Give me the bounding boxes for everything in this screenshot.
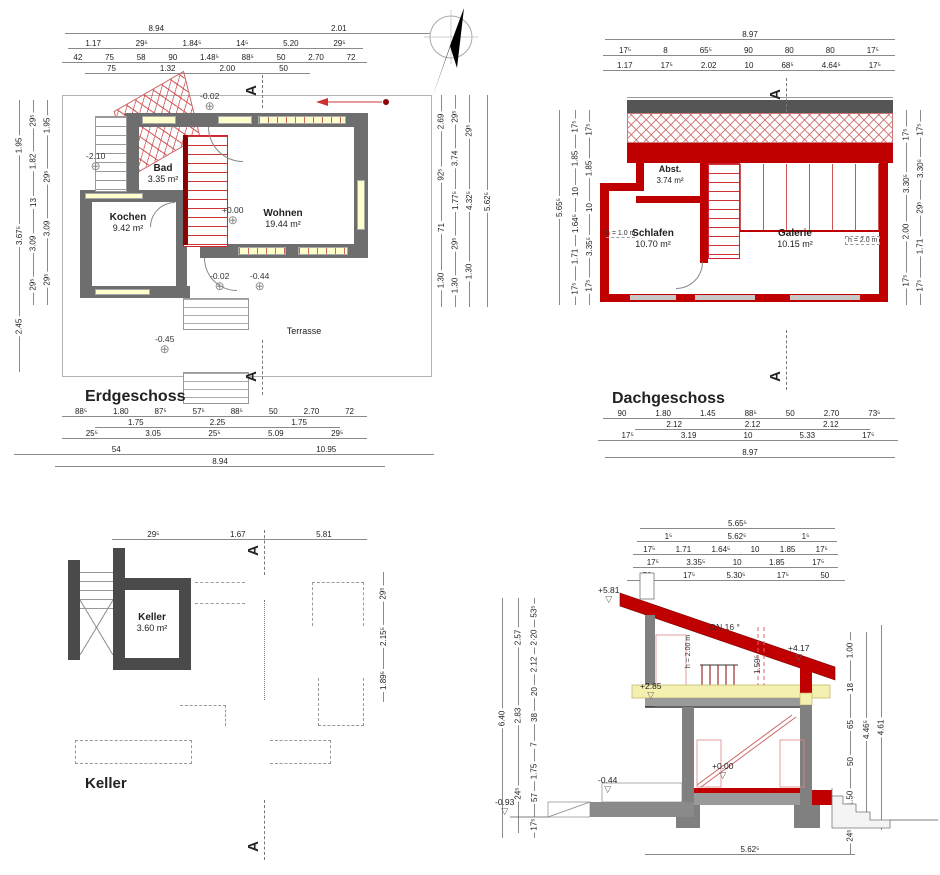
window <box>95 289 150 295</box>
height-note-right: h = 2.0 m <box>845 236 880 245</box>
room-label-abst: Abst. 3.74 m² <box>640 164 700 186</box>
dim-value: 50 <box>275 53 288 62</box>
dim-value: 1.17 <box>615 61 635 70</box>
elevation-icon: ⊕ <box>205 101 215 112</box>
level-icon: ▽ <box>501 807 508 815</box>
level-marker: +2.85▽ <box>640 682 662 699</box>
stair-shaft <box>708 163 740 259</box>
dim-value: 17⁵ <box>867 61 883 70</box>
dim-value: 2.69 <box>437 112 446 132</box>
section-line <box>264 600 265 700</box>
dim-value: 73⁵ <box>866 409 882 418</box>
dim-value: 1.75 <box>289 418 309 427</box>
section-line <box>262 340 263 395</box>
dim-chain: 8.94 <box>55 455 385 468</box>
window <box>695 295 755 300</box>
terrace-steps <box>183 372 249 404</box>
dim-value: 1.48⁵ <box>198 53 221 62</box>
section-marker: A <box>245 545 262 556</box>
dim-value: 3.67⁵ <box>15 225 24 248</box>
roof-fascia <box>627 143 893 163</box>
level-marker: +0.00▽ <box>712 762 734 779</box>
height-note: h = 2.00 m <box>685 635 692 668</box>
dim-value: 1.67 <box>228 530 248 539</box>
dim-value: 5.09 <box>266 429 286 438</box>
elevation-icon: ⊕ <box>255 281 265 292</box>
dim-value: 72 <box>343 407 356 416</box>
dim-chain: 8.942.01 <box>65 22 430 35</box>
dim-value: 5.20 <box>281 39 301 48</box>
dim-value: 29⁵ <box>329 429 345 438</box>
level-icon: ▽ <box>795 653 802 661</box>
title-dachgeschoss: Dachgeschoss <box>612 390 725 408</box>
dim-chain: 17⁵1.85103.35⁵17⁵ <box>582 110 596 305</box>
dim-value: 1.45 <box>698 409 718 418</box>
dim-value: 10.95 <box>314 445 338 454</box>
section-marker: A <box>767 371 784 382</box>
dim-value: 17⁵ <box>865 46 881 55</box>
dim-value: 2.45 <box>15 317 24 337</box>
level-icon: ▽ <box>719 771 726 779</box>
dim-value: 13 <box>29 196 38 209</box>
wall <box>636 196 708 203</box>
dim-value: 75 <box>103 53 116 62</box>
room-label-wohnen: Wohnen 19.44 m² <box>248 208 318 230</box>
wall-right <box>800 705 812 788</box>
dim-chain: 751.322.0050 <box>85 62 310 75</box>
dim-chain: 2.6992⁵711.30 <box>434 95 448 307</box>
elevation-marker: -0.02⊕ <box>200 92 219 112</box>
dim-value: 25⁵ <box>206 429 222 438</box>
wall <box>700 163 708 263</box>
dim-value: 2.01 <box>329 24 349 33</box>
dim-value: 1.30 <box>451 276 460 296</box>
dim-value: 29⁵ <box>451 108 460 124</box>
dim-value: 2.12 <box>743 420 763 429</box>
dim-value: 1.84⁵ <box>181 39 204 48</box>
dim-value: 54 <box>110 445 123 454</box>
dim-value: 8.97 <box>740 30 760 39</box>
roof-edge <box>627 100 893 113</box>
terrace-steps <box>183 298 249 330</box>
dim-value: 1.32 <box>158 64 178 73</box>
floor-slab <box>645 698 812 706</box>
level-icon: ▽ <box>647 691 654 699</box>
dim-chain: 17⁵3.30⁵29⁵1.7117⁵ <box>913 110 927 305</box>
dim-value: 1.17 <box>83 39 103 48</box>
dim-value: 8.97 <box>740 448 760 457</box>
elevation-marker: -0.02⊕ <box>210 272 229 292</box>
dim-value: 29⁵ <box>43 271 52 287</box>
dim-chain: 29⁵2.15⁵1.89⁵ <box>376 572 390 702</box>
dim-value: 8.94 <box>146 24 166 33</box>
dim-value: 17⁵ <box>860 431 876 440</box>
dim-value: 2.70 <box>822 409 842 418</box>
dim-value: 8.94 <box>210 457 230 466</box>
dim-value: 17⁵ <box>585 121 594 137</box>
dim-value: 29⁵ <box>134 39 150 48</box>
dim-value: 3.19 <box>679 431 699 440</box>
dim-value: 2.70 <box>302 407 322 416</box>
dim-value: 2.12 <box>664 420 684 429</box>
section-line <box>786 330 787 390</box>
terrace-slab <box>590 802 694 817</box>
room-label-terrasse: Terrasse <box>272 326 336 337</box>
room-label-galerie: Galerie 10.15 m² <box>760 228 830 250</box>
dim-value: 1.80 <box>111 407 131 416</box>
roof-slope-label: DN 16 ° <box>710 622 740 632</box>
dim-value: 2.25 <box>208 418 228 427</box>
dim-value: 3.35⁵ <box>585 235 594 258</box>
dim-value: 2.70 <box>306 53 326 62</box>
wall <box>68 560 80 660</box>
section-line <box>786 78 787 112</box>
dim-value: 25⁵ <box>84 429 100 438</box>
dim-value: 29⁵ <box>379 586 388 602</box>
dim-value: 29⁵ <box>331 39 347 48</box>
dim-value: 71 <box>437 221 446 234</box>
dashed-outline <box>180 705 226 726</box>
dim-value: 17⁵ <box>902 273 911 289</box>
dim-value: 90 <box>166 53 179 62</box>
dim-value: 80 <box>824 46 837 55</box>
eave-line <box>627 97 893 98</box>
dim-chain: 1.953.67⁵2.45 <box>12 100 26 372</box>
wall <box>80 190 92 298</box>
dim-value: 2.15⁵ <box>379 626 388 649</box>
level-marker: +5.81▽ <box>598 586 620 603</box>
dim-value: 8 <box>661 46 669 55</box>
dim-value: 2.00 <box>902 222 911 242</box>
dim-value: 92⁵ <box>437 166 446 182</box>
dim-value: 17⁵ <box>571 118 580 134</box>
section-marker: A <box>243 371 260 382</box>
dim-chain: 8.97 <box>605 28 895 41</box>
height-note-left: h = 1.0 m <box>606 230 635 238</box>
dim-value: 29⁵ <box>29 112 38 128</box>
dim-value: 87⁵ <box>153 407 169 416</box>
dim-chain: 17⁵3.30⁵2.0017⁵ <box>899 110 913 305</box>
dim-chain: 17⁵3.19105.3317⁵ <box>598 429 898 442</box>
elevation-icon: ⊕ <box>91 161 101 172</box>
elevation-icon: ⊕ <box>228 215 238 226</box>
dim-value: 80 <box>783 46 796 55</box>
dim-chain: 8.97 <box>605 446 895 459</box>
north-arrow-icon <box>422 6 478 101</box>
dim-chain: 17⁵1.85101.64⁵1.7117⁵ <box>568 110 582 305</box>
dim-value: 65⁵ <box>698 46 714 55</box>
dim-value: 10 <box>743 61 756 70</box>
window <box>85 193 143 199</box>
dim-value: 17⁵ <box>571 281 580 297</box>
level-marker: -0.44▽ <box>598 776 617 793</box>
dim-value: 1.77⁵ <box>451 190 460 213</box>
dim-chain: 17⁵865⁵90808017⁵ <box>603 44 895 57</box>
room-label-keller: Keller 3.60 m² <box>122 612 182 634</box>
drawing-sheet: 8.942.01 1.1729⁵1.84⁵14⁵5.2029⁵ 42755890… <box>0 0 940 875</box>
floor-finish <box>694 788 800 793</box>
dim-value: 1.64⁵ <box>571 212 580 235</box>
dim-value: 2.02 <box>699 61 719 70</box>
dim-value: 1.71 <box>916 237 925 257</box>
dim-value: 3.30⁵ <box>916 157 925 180</box>
dim-value: 29⁵ <box>465 122 474 138</box>
dim-value: 50 <box>784 409 797 418</box>
dim-value: 1.75 <box>126 418 146 427</box>
foundation-right <box>794 805 820 828</box>
dim-value: 17⁵ <box>617 46 633 55</box>
dim-value: 29⁵ <box>916 199 925 215</box>
dim-value: 3.74 <box>451 149 460 169</box>
level-icon: ▽ <box>605 595 612 603</box>
dim-value: 29⁵ <box>145 530 161 539</box>
dim-value: 4.32⁵ <box>465 190 474 213</box>
dim-value: 50 <box>267 407 280 416</box>
dim-value: 17⁵ <box>916 121 925 137</box>
elevation-marker: -0.44⊕ <box>250 272 269 292</box>
dim-value: 75 <box>105 64 118 73</box>
dim-chain: 1.1729⁵1.84⁵14⁵5.2029⁵ <box>68 37 363 50</box>
elevation-marker: +0.00⊕ <box>222 206 244 226</box>
dim-value: 1.95 <box>15 136 24 156</box>
door-line <box>80 600 113 655</box>
dim-value: 29⁵ <box>43 169 52 185</box>
dim-value: 1.95 <box>43 116 52 136</box>
stair-wall <box>183 135 188 245</box>
wall-parapet <box>800 667 812 693</box>
dim-value: 1.89⁵ <box>379 669 388 692</box>
galerie-railing <box>740 164 879 232</box>
title-erdgeschoss: Erdgeschoss <box>85 388 185 406</box>
dim-value: 17⁵ <box>659 61 675 70</box>
dim-value: 88⁵ <box>240 53 256 62</box>
dim-value: 3.09 <box>29 234 38 254</box>
dim-value: 72 <box>345 53 358 62</box>
dashed-outline <box>195 582 245 604</box>
dim-value: 5.65⁵ <box>555 196 564 219</box>
dim-chain: 29⁵1.82133.0929⁵ <box>26 100 40 305</box>
dim-value: 1.85 <box>585 159 594 179</box>
dim-value: 1.85 <box>571 149 580 169</box>
dim-value: 17⁵ <box>916 277 925 293</box>
title-keller: Keller <box>85 775 127 792</box>
dim-value: 4.64⁵ <box>820 61 843 70</box>
section-line <box>262 75 263 108</box>
dim-value: 2.00 <box>217 64 237 73</box>
dim-value: 2.12 <box>821 420 841 429</box>
dim-value: 29⁵ <box>29 276 38 292</box>
section-line <box>264 530 265 575</box>
exterior-steps <box>832 788 890 828</box>
entry-arrow-icon <box>312 94 390 110</box>
window <box>790 295 860 300</box>
dim-value: 5.81 <box>314 530 334 539</box>
room-label-kochen: Kochen 9.42 m² <box>95 212 161 234</box>
dim-value: 57⁵ <box>191 407 207 416</box>
dim-value: 10 <box>742 431 755 440</box>
level-icon: ▽ <box>604 785 611 793</box>
elevation-icon: ⊕ <box>215 281 225 292</box>
dashed-outline <box>75 740 192 764</box>
section-marker: A <box>243 85 260 96</box>
door-arc <box>676 262 703 289</box>
dim-value: 88⁵ <box>229 407 245 416</box>
dim-value: 10 <box>571 185 580 198</box>
dim-chain: 29⁵4.32⁵1.30 <box>462 95 476 307</box>
wall <box>879 163 888 302</box>
wall <box>113 548 125 583</box>
dim-value: 5.33 <box>798 431 818 440</box>
dim-value: 17⁵ <box>585 277 594 293</box>
dim-value: 3.30⁵ <box>902 172 911 195</box>
elevation-icon: ⊕ <box>160 344 170 355</box>
dim-value: 88⁵ <box>743 409 759 418</box>
rail-dim: 1.59⁵ <box>753 655 762 674</box>
window <box>258 116 346 124</box>
dashed-outline <box>270 740 331 764</box>
dim-value: 3.09 <box>43 218 52 238</box>
elevation-marker: -2.10⊕ <box>86 152 105 172</box>
window <box>238 247 286 255</box>
room-label-bad: Bad 3.35 m² <box>135 163 191 185</box>
wall <box>600 183 609 302</box>
dim-value: 90 <box>742 46 755 55</box>
dashed-outline <box>318 678 364 726</box>
dim-value: 10 <box>585 201 594 214</box>
dim-value: 17⁵ <box>620 431 636 440</box>
roof-hatch <box>627 113 893 143</box>
dim-value: 68⁵ <box>779 61 795 70</box>
window <box>357 180 365 230</box>
dim-value: 90 <box>616 409 629 418</box>
dim-value: 1.71 <box>571 246 580 266</box>
wall-ground-left <box>682 707 694 805</box>
dim-chain: 5.62⁵ <box>480 95 494 307</box>
dim-value: 42 <box>71 53 84 62</box>
dim-value: 29⁵ <box>451 235 460 251</box>
dim-value: 5.62⁵ <box>483 190 492 213</box>
window <box>218 116 252 124</box>
level-marker: +4.17▽ <box>788 644 810 661</box>
dim-chain: 5.65⁵ <box>552 110 566 305</box>
dim-value: 1.30 <box>437 271 446 291</box>
section-marker: A <box>767 89 784 100</box>
dim-value: 1.30 <box>465 262 474 282</box>
dim-value: 17⁵ <box>902 126 911 142</box>
dim-value: 88⁵ <box>73 407 89 416</box>
window <box>630 295 676 300</box>
section-drawing <box>490 515 940 875</box>
section-line <box>264 800 265 860</box>
dim-value: 1.82 <box>29 152 38 172</box>
dim-chain: 29⁵1.675.81 <box>112 528 367 541</box>
vent <box>640 573 654 599</box>
elevation-marker: -0.45⊕ <box>155 335 174 355</box>
dim-chain: 1.9529⁵3.0929⁵ <box>40 100 54 305</box>
window <box>298 247 348 255</box>
dim-chain: 29⁵3.741.77⁵29⁵1.30 <box>448 95 462 307</box>
dim-value: 3.05 <box>143 429 163 438</box>
dim-value: 1.80 <box>653 409 673 418</box>
section-marker: A <box>245 841 262 852</box>
level-marker: -0.93▽ <box>495 798 514 815</box>
dim-value: 58 <box>135 53 148 62</box>
window <box>142 116 176 124</box>
dim-value: 14⁵ <box>234 39 250 48</box>
dashed-outline <box>312 582 364 626</box>
dim-chain: 1.1717⁵2.021068⁵4.64⁵17⁵ <box>603 59 895 72</box>
dim-value: 50 <box>277 64 290 73</box>
dim-chain: 25⁵3.0525⁵5.0929⁵ <box>62 427 367 440</box>
